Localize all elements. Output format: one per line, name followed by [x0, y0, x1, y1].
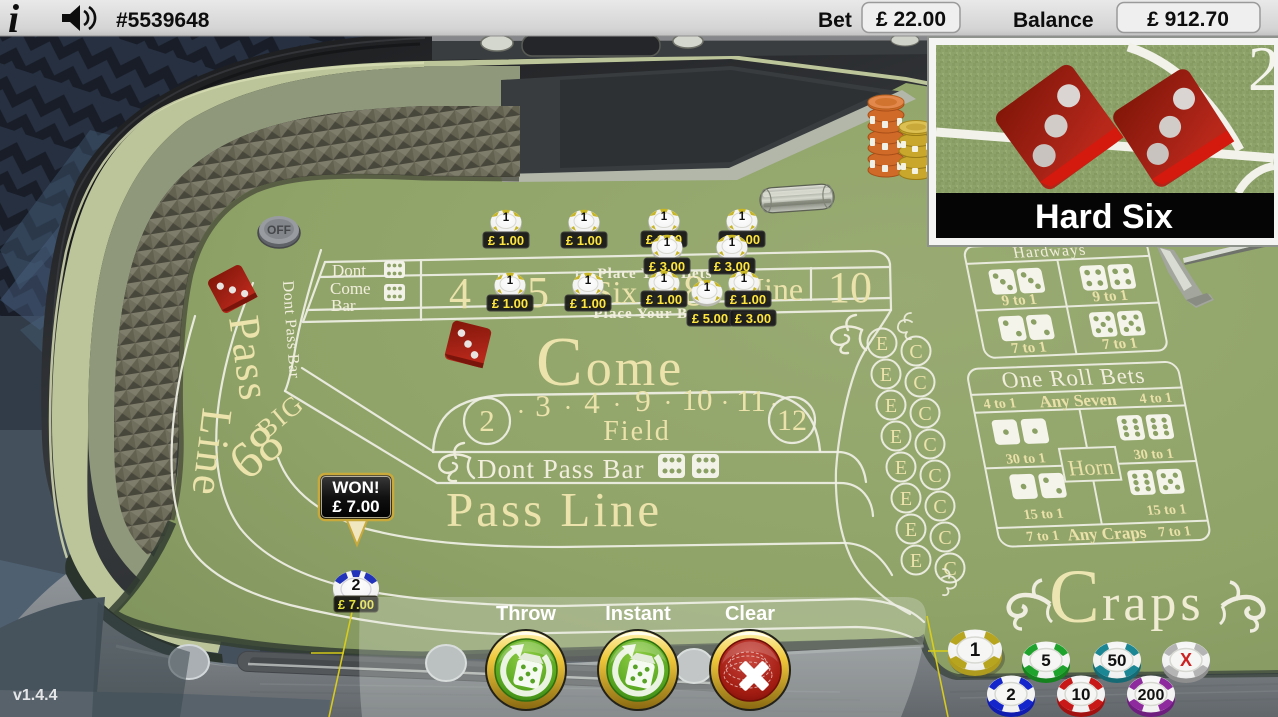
- svg-text:Hard Six: Hard Six: [1035, 198, 1173, 236]
- svg-text:E: E: [895, 457, 907, 479]
- svg-text:15 to 1: 15 to 1: [1022, 506, 1065, 523]
- svg-text:12: 12: [777, 404, 807, 437]
- svg-text:Horn: Horn: [1066, 454, 1116, 480]
- svg-text:£ 912.70: £ 912.70: [1147, 8, 1229, 31]
- svg-text:£ 7.00: £ 7.00: [332, 497, 379, 516]
- svg-text:4: 4: [449, 269, 471, 318]
- svg-text:Dont: Dont: [332, 261, 366, 280]
- svg-text:OFF: OFF: [267, 223, 291, 237]
- svg-text:2: 2: [479, 403, 495, 438]
- svg-text:200: 200: [1138, 687, 1165, 704]
- svg-text:9 to 1: 9 to 1: [1000, 292, 1038, 309]
- svg-text:£ 22.00: £ 22.00: [876, 8, 946, 31]
- svg-text:i: i: [8, 0, 19, 41]
- svg-text:E: E: [910, 550, 922, 572]
- svg-text:X: X: [1180, 650, 1192, 670]
- svg-text:·: ·: [517, 397, 526, 426]
- svg-text:30 to 1: 30 to 1: [1004, 450, 1047, 467]
- svg-text:30 to 1: 30 to 1: [1132, 446, 1175, 463]
- svg-text:WON!: WON!: [332, 478, 379, 497]
- svg-text:E: E: [890, 426, 902, 448]
- svg-text:10: 10: [1072, 685, 1091, 704]
- svg-text:C: C: [1049, 555, 1100, 639]
- svg-text:C: C: [909, 341, 922, 363]
- svg-text:E: E: [880, 364, 892, 386]
- svg-text:11: 11: [736, 383, 766, 418]
- svg-text:£ 3.00: £ 3.00: [735, 311, 771, 326]
- svg-text:7 to 1: 7 to 1: [1010, 340, 1048, 357]
- svg-text:7 to 1: 7 to 1: [1157, 523, 1193, 540]
- svg-text:·: ·: [664, 388, 673, 417]
- svg-text:·: ·: [721, 388, 730, 417]
- svg-text:7 to 1: 7 to 1: [1025, 528, 1061, 545]
- svg-text:#5539648: #5539648: [116, 9, 210, 32]
- svg-text:Balance: Balance: [1013, 9, 1094, 32]
- svg-text:2: 2: [352, 577, 361, 594]
- svg-text:C: C: [938, 527, 951, 549]
- svg-text:9: 9: [635, 383, 651, 418]
- svg-text:C: C: [933, 496, 946, 518]
- svg-text:7 to 1: 7 to 1: [1101, 336, 1139, 353]
- svg-text:C: C: [928, 465, 941, 487]
- svg-text:Throw: Throw: [496, 603, 556, 625]
- svg-text:C: C: [918, 403, 931, 425]
- svg-text:1: 1: [970, 640, 981, 661]
- svg-text:E: E: [885, 395, 897, 417]
- svg-text:4: 4: [584, 385, 600, 420]
- svg-text:50: 50: [1108, 651, 1127, 670]
- svg-text:3: 3: [535, 388, 551, 423]
- svg-text:10: 10: [682, 382, 713, 417]
- svg-text:E: E: [900, 488, 912, 510]
- svg-text:Dont Pass Bar: Dont Pass Bar: [477, 454, 645, 484]
- svg-text:C: C: [913, 372, 926, 394]
- svg-text:v1.4.4: v1.4.4: [13, 687, 58, 704]
- svg-text:15 to 1: 15 to 1: [1145, 502, 1188, 519]
- svg-text:Instant: Instant: [605, 603, 671, 625]
- svg-text:Clear: Clear: [725, 603, 775, 625]
- svg-text:One Roll Bets: One Roll Bets: [999, 363, 1147, 394]
- svg-text:5: 5: [1041, 651, 1050, 670]
- svg-text:2: 2: [1248, 33, 1278, 104]
- svg-text:·: ·: [564, 393, 573, 422]
- svg-text:·: ·: [613, 390, 622, 419]
- svg-text:Bet: Bet: [818, 9, 852, 32]
- svg-text:Field: Field: [603, 416, 671, 447]
- svg-text:Bar: Bar: [331, 296, 356, 315]
- svg-text:10: 10: [828, 263, 872, 312]
- svg-text:4 to 1: 4 to 1: [1138, 390, 1174, 407]
- svg-text:raps: raps: [1102, 575, 1205, 632]
- svg-text:£ 5.00: £ 5.00: [692, 311, 728, 326]
- svg-text:Any Seven: Any Seven: [1038, 390, 1119, 411]
- svg-text:Pass Line: Pass Line: [446, 482, 662, 537]
- svg-text:C: C: [923, 434, 936, 456]
- svg-text:9 to 1: 9 to 1: [1091, 288, 1129, 305]
- svg-text:E: E: [905, 519, 917, 541]
- svg-text:Any Craps: Any Craps: [1065, 523, 1148, 545]
- svg-text:4 to 1: 4 to 1: [982, 395, 1018, 412]
- svg-text:E: E: [876, 333, 888, 355]
- svg-text:2: 2: [1006, 685, 1015, 704]
